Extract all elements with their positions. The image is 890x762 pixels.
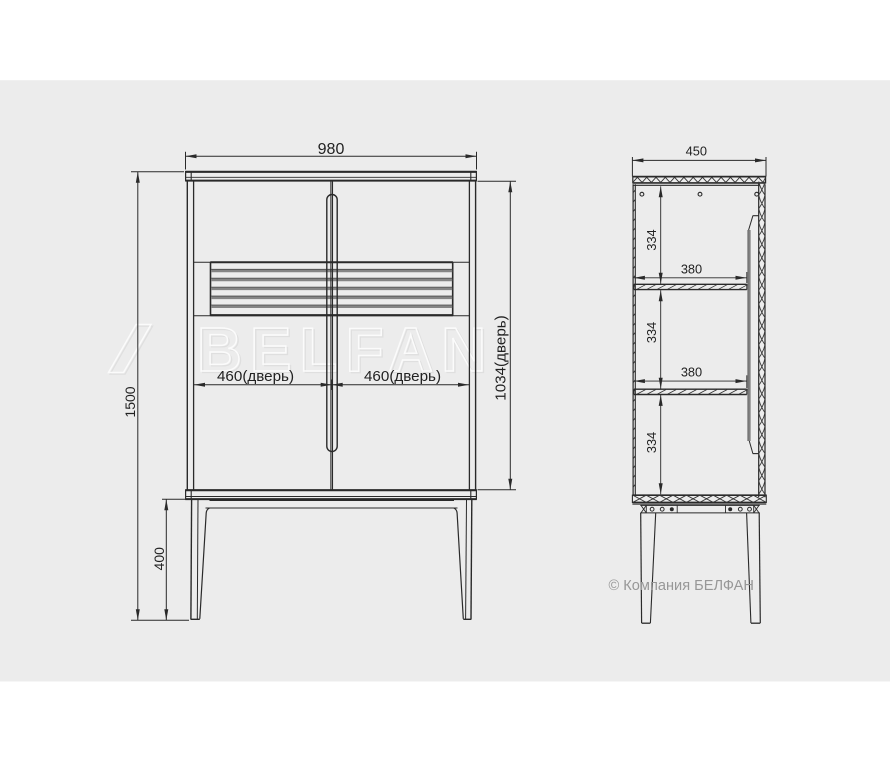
svg-text:400: 400 bbox=[151, 547, 167, 571]
svg-text:450: 450 bbox=[686, 144, 707, 159]
svg-text:1500: 1500 bbox=[122, 386, 138, 417]
svg-text:© Компания БЕЛФАН: © Компания БЕЛФАН bbox=[609, 578, 754, 594]
svg-text:334: 334 bbox=[644, 322, 659, 343]
svg-text:980: 980 bbox=[318, 141, 345, 158]
svg-text:380: 380 bbox=[681, 261, 702, 276]
svg-text:460(дверь): 460(дверь) bbox=[364, 368, 441, 385]
svg-text:460(дверь): 460(дверь) bbox=[217, 368, 294, 385]
svg-text:380: 380 bbox=[681, 365, 702, 380]
svg-text:1034(дверь): 1034(дверь) bbox=[493, 315, 510, 400]
svg-text:334: 334 bbox=[644, 432, 659, 453]
svg-text:334: 334 bbox=[644, 229, 659, 250]
